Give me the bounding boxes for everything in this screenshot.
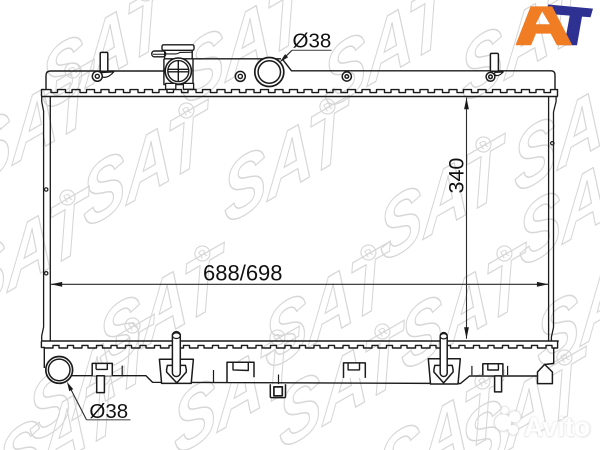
svg-text:340: 340 [445,158,469,194]
svg-text:Ø38: Ø38 [293,29,332,52]
svg-text:Avito: Avito [524,412,591,442]
svg-text:688/698: 688/698 [203,260,283,285]
svg-text:Ø38: Ø38 [89,400,128,423]
